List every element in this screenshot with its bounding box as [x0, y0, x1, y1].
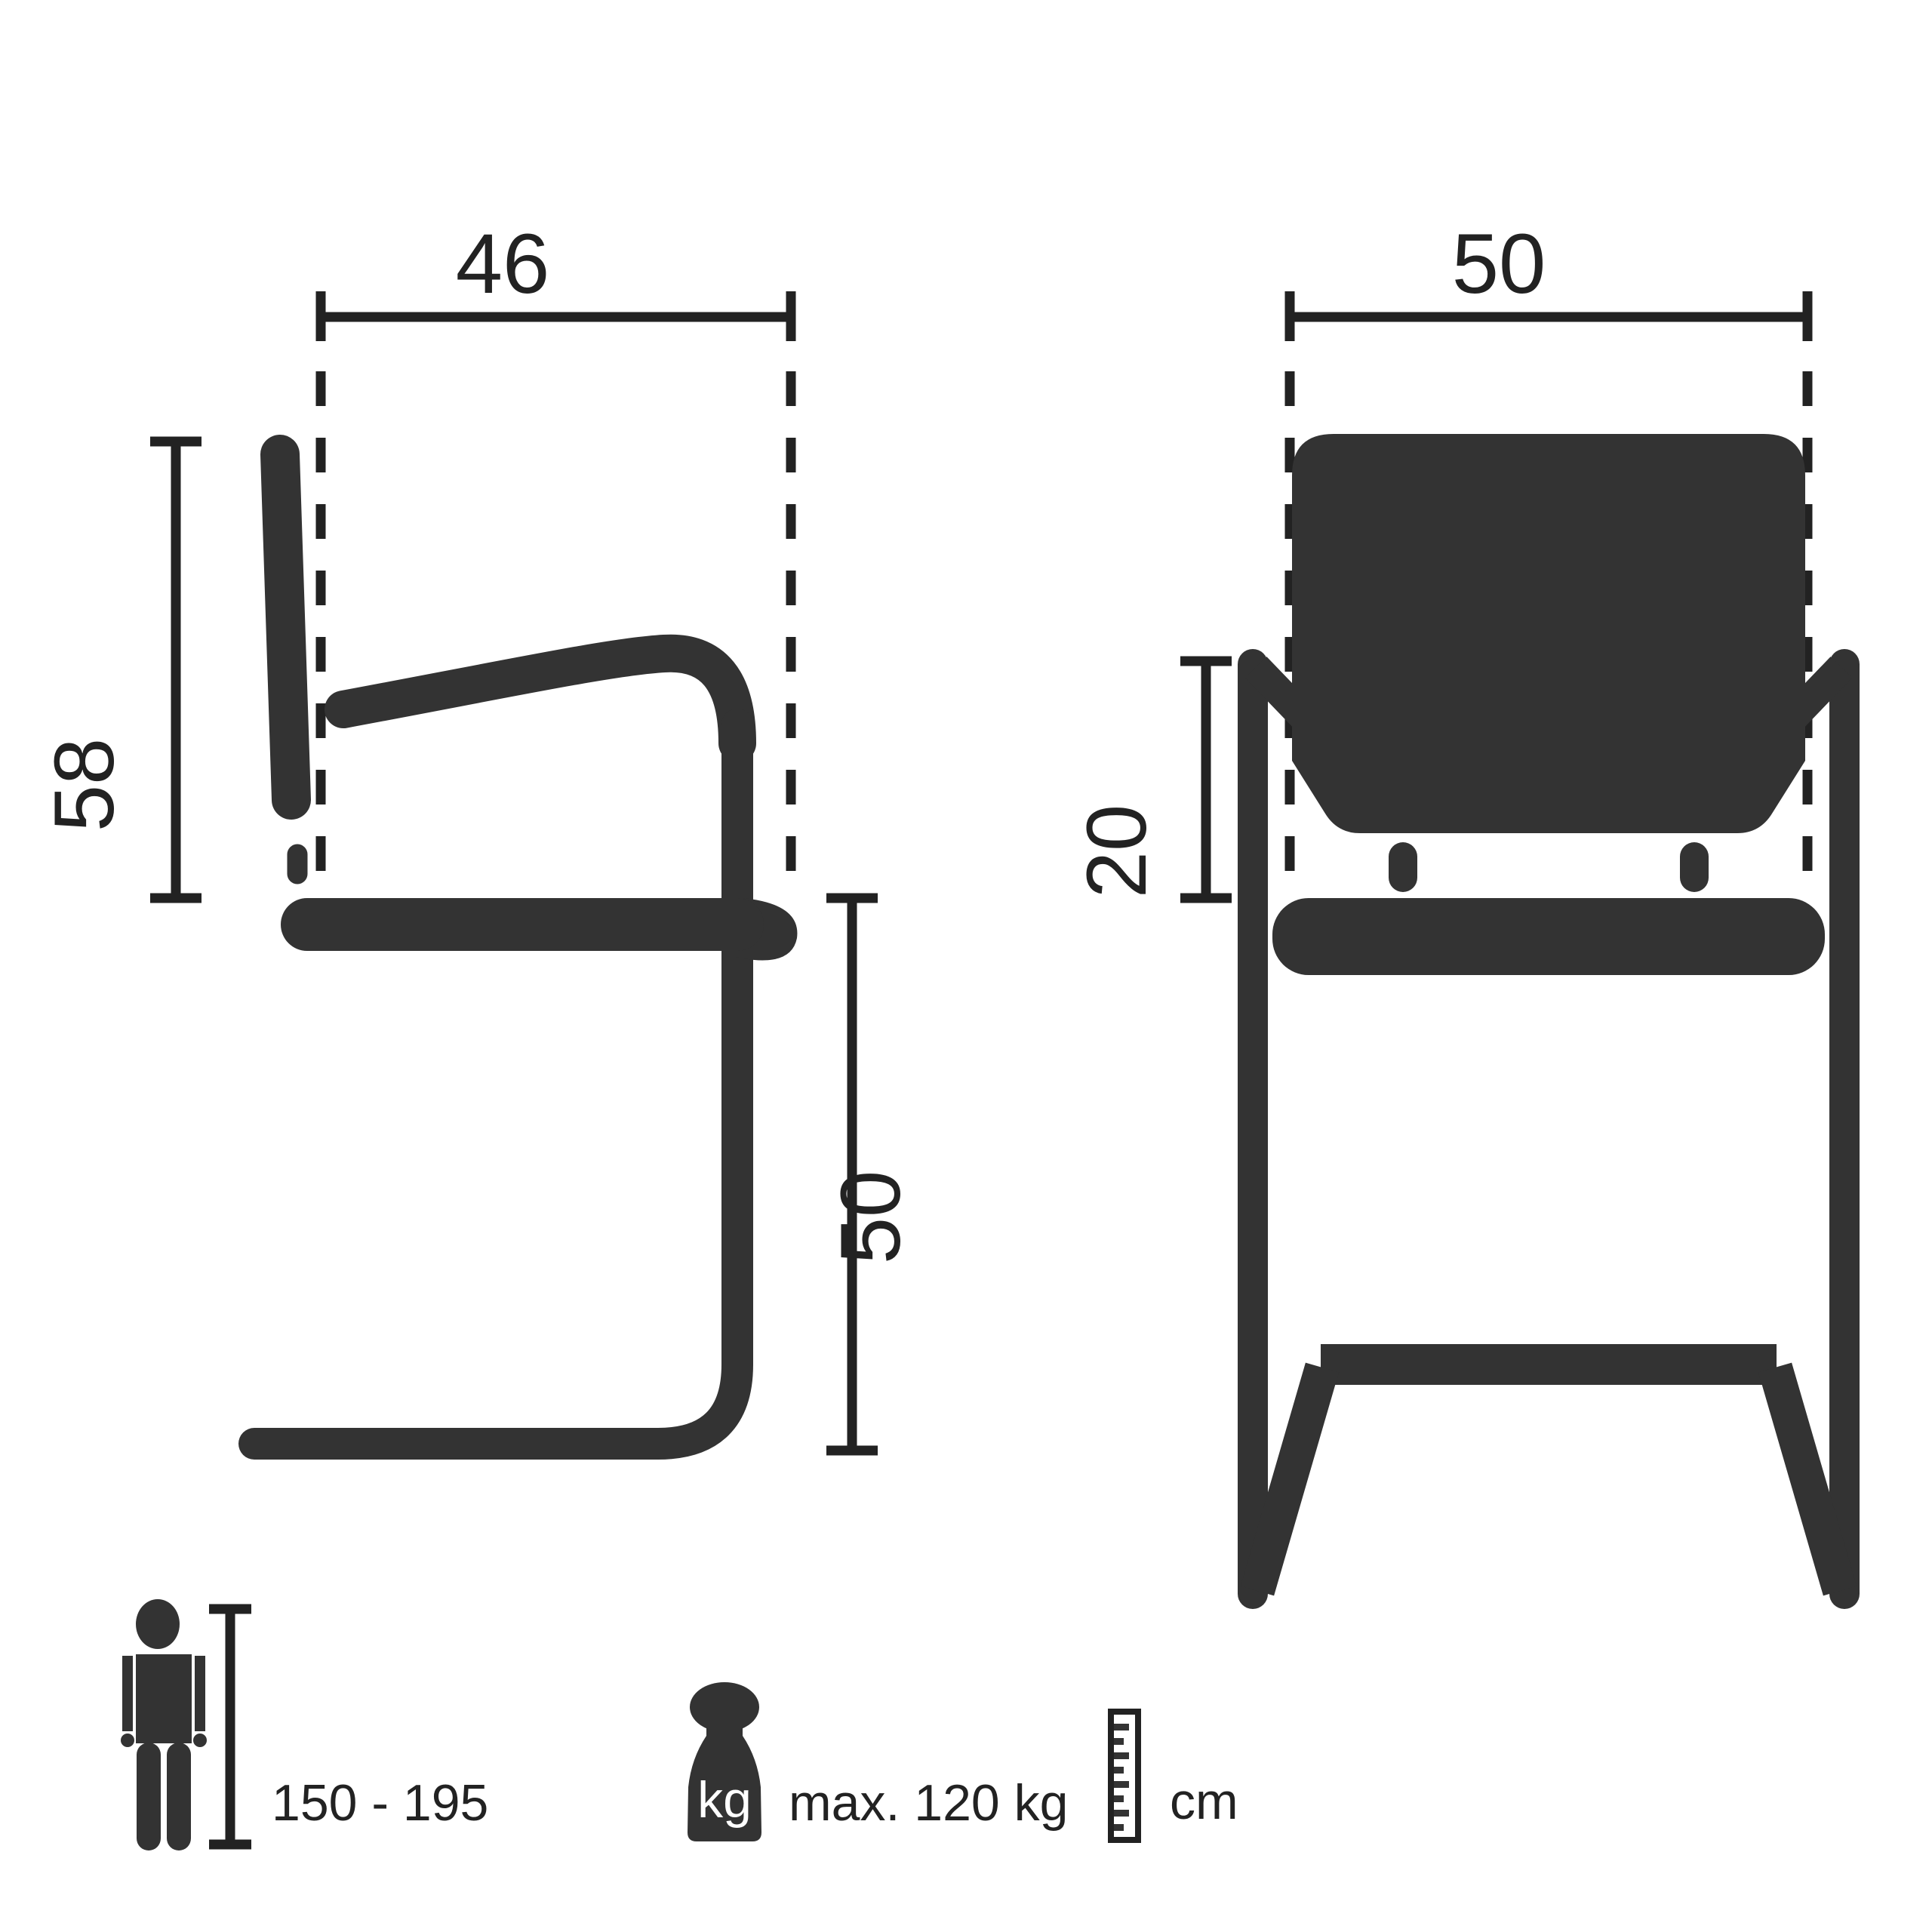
side-view-width-dimension-label: 46 — [456, 217, 550, 311]
ruler-unit-label: cm — [1170, 1773, 1238, 1830]
ruler-tick — [1114, 1795, 1124, 1802]
chair-dimension-diagram: 46 58 50 — [0, 0, 1932, 1932]
ruler-body — [1111, 1712, 1138, 1840]
front-view-backrest-connector-left — [1389, 842, 1417, 892]
side-view-chair — [254, 454, 797, 1444]
person-arm-right — [195, 1656, 205, 1731]
side-view-seat-height-dimension: 50 — [823, 898, 918, 1451]
person-height-range-label: 150 - 195 — [272, 1774, 488, 1832]
person-head — [136, 1599, 180, 1649]
person-torso — [136, 1654, 192, 1743]
side-view: 46 58 50 — [37, 217, 918, 1451]
person-icon — [121, 1599, 207, 1838]
ruler-tick — [1114, 1767, 1124, 1774]
side-view-armrest — [343, 654, 737, 743]
ruler-tick — [1114, 1824, 1124, 1831]
ruler-tick — [1114, 1724, 1129, 1730]
front-view-backrest-connector-right — [1680, 842, 1709, 892]
side-view-seat-height-label: 50 — [823, 1171, 918, 1265]
side-view-backrest-height-label: 58 — [37, 738, 131, 832]
front-view-backrest — [1292, 434, 1805, 833]
ruler-icon — [1111, 1712, 1138, 1840]
side-view-backrest — [280, 454, 291, 800]
front-view-chair — [1253, 434, 1844, 1594]
front-view-seat — [1272, 898, 1825, 975]
side-view-backrest-height-dimension: 58 — [37, 441, 202, 898]
side-view-seat — [281, 898, 764, 951]
side-view-frame-tube — [254, 724, 737, 1444]
legend-row: 150 - 195 kg max. 120 kg cm — [121, 1599, 1238, 1844]
weight-icon: kg — [688, 1682, 761, 1841]
ruler-tick — [1114, 1781, 1129, 1788]
diagram-canvas: 46 58 50 — [0, 0, 1932, 1932]
ruler-tick — [1114, 1752, 1129, 1759]
ruler-tick — [1114, 1738, 1124, 1745]
side-view-width-dimension: 46 — [321, 217, 791, 891]
max-weight-label: max. 120 kg — [789, 1774, 1068, 1832]
person-arm-left — [122, 1656, 133, 1731]
front-view: 50 20 — [1069, 217, 1844, 1594]
front-view-armrest-height-dimension: 20 — [1069, 661, 1232, 898]
person-height-dimension: 150 - 195 — [209, 1609, 488, 1844]
person-hand-left — [121, 1734, 134, 1747]
front-view-armrest-height-label: 20 — [1069, 804, 1164, 899]
person-hand-right — [193, 1734, 207, 1747]
ruler-tick — [1114, 1810, 1129, 1817]
weight-unit-label: kg — [697, 1771, 752, 1829]
front-view-width-dimension-label: 50 — [1452, 217, 1546, 311]
